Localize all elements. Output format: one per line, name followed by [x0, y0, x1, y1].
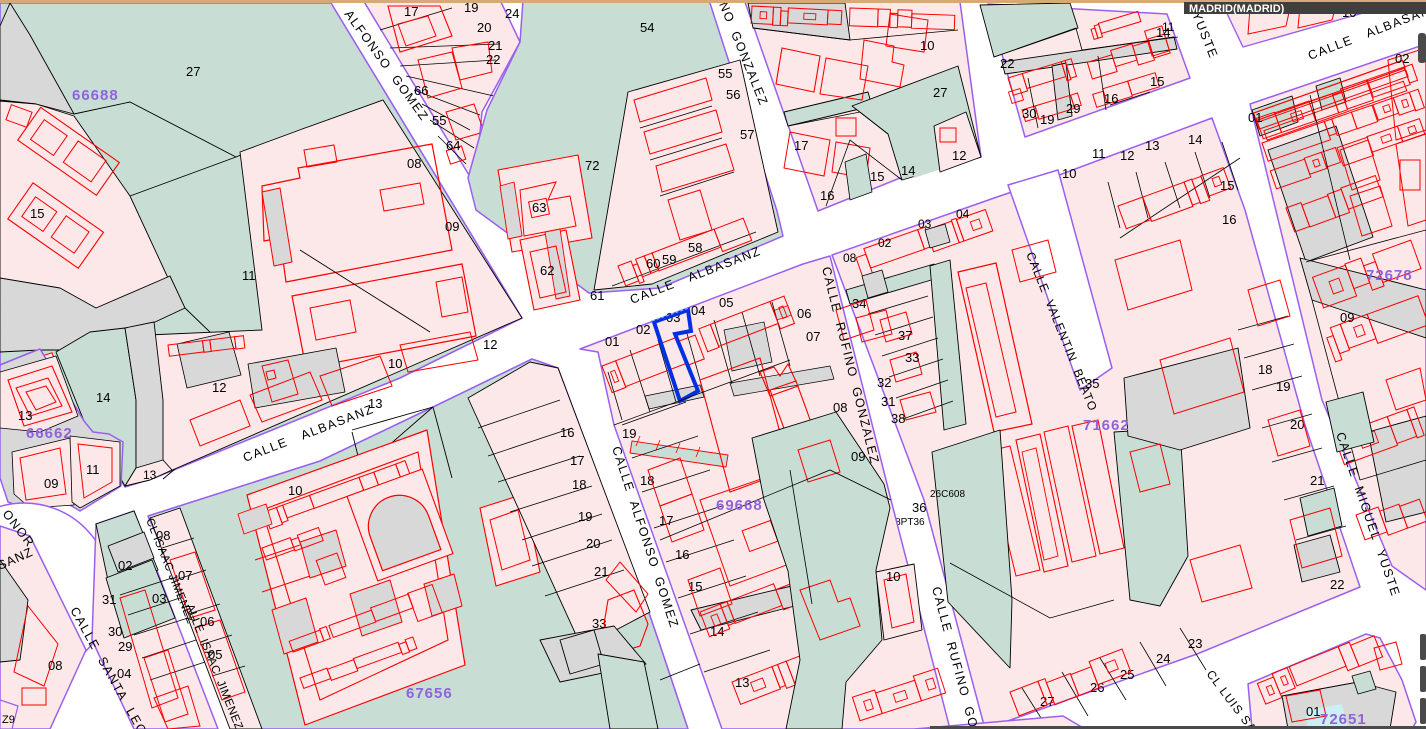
svg-text:30: 30: [108, 624, 122, 639]
svg-text:35: 35: [1085, 376, 1099, 391]
svg-text:08: 08: [407, 156, 421, 171]
svg-text:05: 05: [719, 295, 733, 310]
svg-text:31: 31: [102, 592, 116, 607]
svg-text:14: 14: [96, 390, 110, 405]
svg-text:16: 16: [820, 188, 834, 203]
svg-text:33: 33: [905, 350, 919, 365]
svg-text:13: 13: [1145, 138, 1159, 153]
svg-text:72651: 72651: [1320, 711, 1367, 728]
svg-text:02: 02: [1395, 51, 1409, 66]
svg-text:55: 55: [718, 66, 732, 81]
svg-text:14: 14: [1156, 25, 1170, 40]
svg-text:32: 32: [877, 375, 891, 390]
svg-text:02: 02: [636, 322, 650, 337]
svg-text:01: 01: [1248, 110, 1262, 125]
svg-text:09: 09: [1340, 310, 1354, 325]
svg-text:24: 24: [1156, 651, 1170, 666]
svg-text:16: 16: [560, 425, 574, 440]
svg-text:19: 19: [622, 426, 636, 441]
svg-text:22: 22: [1330, 577, 1344, 592]
svg-text:15: 15: [1220, 178, 1234, 193]
svg-text:30: 30: [1022, 106, 1036, 121]
svg-text:66662: 66662: [26, 425, 73, 442]
svg-text:66688: 66688: [72, 87, 119, 104]
svg-text:06: 06: [797, 306, 811, 321]
svg-text:15: 15: [1150, 74, 1164, 89]
svg-text:18: 18: [572, 477, 586, 492]
svg-text:38: 38: [891, 411, 905, 426]
svg-text:58: 58: [688, 240, 702, 255]
svg-text:04: 04: [691, 303, 705, 318]
svg-text:12: 12: [1120, 148, 1134, 163]
svg-text:16: 16: [1104, 91, 1118, 106]
svg-text:11: 11: [86, 462, 100, 477]
svg-text:18: 18: [1258, 362, 1272, 377]
svg-text:12: 12: [212, 380, 226, 395]
svg-text:20: 20: [477, 20, 491, 35]
svg-text:08: 08: [833, 400, 847, 415]
svg-text:04: 04: [956, 207, 970, 221]
svg-text:22: 22: [486, 52, 500, 67]
svg-text:01: 01: [605, 334, 619, 349]
svg-text:09: 09: [851, 449, 865, 464]
svg-text:19: 19: [1040, 112, 1054, 127]
svg-text:02: 02: [878, 236, 892, 250]
svg-text:36: 36: [912, 500, 926, 515]
svg-text:14: 14: [1188, 132, 1202, 147]
svg-text:10: 10: [388, 356, 402, 371]
svg-text:24: 24: [505, 6, 519, 21]
svg-text:61: 61: [590, 288, 604, 303]
svg-text:13: 13: [143, 468, 157, 482]
svg-text:19: 19: [1276, 379, 1290, 394]
svg-text:14: 14: [901, 163, 915, 178]
svg-text:03: 03: [152, 591, 166, 606]
svg-text:26C608: 26C608: [930, 489, 965, 500]
svg-text:09: 09: [44, 476, 58, 491]
svg-text:22: 22: [1000, 56, 1014, 71]
svg-text:29: 29: [118, 639, 132, 654]
svg-text:23: 23: [1188, 636, 1202, 651]
svg-text:16: 16: [675, 547, 689, 562]
svg-text:08: 08: [843, 251, 857, 265]
svg-text:20: 20: [586, 536, 600, 551]
svg-text:62: 62: [540, 263, 554, 278]
svg-text:37: 37: [898, 328, 912, 343]
svg-text:60: 60: [646, 256, 660, 271]
svg-text:11: 11: [242, 268, 256, 283]
svg-text:11: 11: [1092, 146, 1106, 161]
svg-text:17: 17: [404, 4, 418, 19]
svg-text:MADRID(MADRID): MADRID(MADRID): [1189, 3, 1285, 15]
svg-text:18: 18: [640, 473, 654, 488]
svg-text:12: 12: [952, 148, 966, 163]
svg-text:72678: 72678: [1366, 267, 1413, 284]
svg-text:29: 29: [1066, 101, 1080, 116]
svg-text:27: 27: [186, 64, 200, 79]
svg-text:08: 08: [48, 658, 62, 673]
svg-text:57: 57: [740, 127, 754, 142]
svg-text:10: 10: [1062, 166, 1076, 181]
svg-text:25: 25: [1120, 667, 1134, 682]
svg-text:17: 17: [794, 138, 808, 153]
svg-text:10: 10: [288, 483, 302, 498]
svg-text:63: 63: [532, 200, 546, 215]
svg-text:59: 59: [662, 252, 676, 267]
svg-text:16: 16: [1222, 212, 1236, 227]
svg-text:10: 10: [886, 569, 900, 584]
svg-text:13: 13: [18, 408, 32, 423]
svg-text:67656: 67656: [406, 685, 453, 702]
svg-text:12: 12: [483, 337, 497, 352]
svg-text:01: 01: [1306, 704, 1320, 719]
svg-text:19: 19: [578, 509, 592, 524]
svg-text:09: 09: [445, 219, 459, 234]
svg-text:21: 21: [594, 564, 608, 579]
svg-text:13: 13: [735, 675, 749, 690]
svg-text:10: 10: [920, 38, 934, 53]
svg-text:17: 17: [570, 453, 584, 468]
svg-text:07: 07: [806, 329, 820, 344]
svg-text:Z9: Z9: [2, 714, 15, 726]
svg-text:15: 15: [870, 169, 884, 184]
svg-text:21: 21: [1310, 473, 1324, 488]
svg-text:69668: 69668: [716, 497, 763, 514]
svg-text:64: 64: [446, 138, 460, 153]
svg-text:31: 31: [881, 394, 895, 409]
svg-text:15: 15: [30, 206, 44, 221]
svg-text:21: 21: [488, 38, 502, 53]
svg-text:27: 27: [933, 85, 947, 100]
svg-text:72: 72: [585, 158, 599, 173]
svg-text:02: 02: [118, 558, 132, 573]
svg-text:71662: 71662: [1083, 417, 1130, 434]
svg-text:56: 56: [726, 87, 740, 102]
svg-text:55: 55: [432, 113, 446, 128]
svg-text:54: 54: [640, 20, 654, 35]
